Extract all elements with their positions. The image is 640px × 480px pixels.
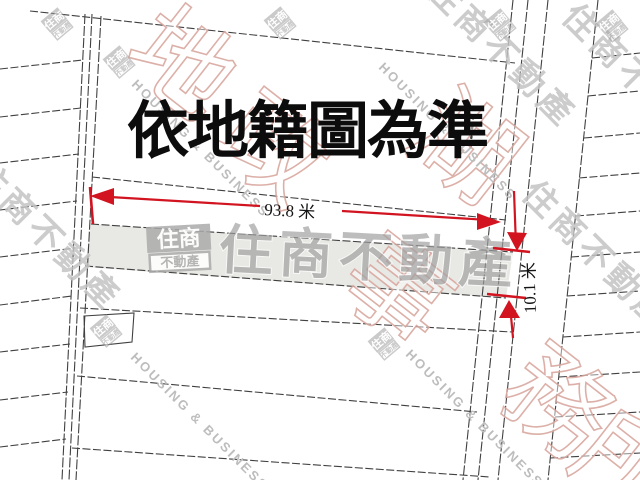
length-dimension-label: 93.8 米 — [264, 200, 316, 222]
brand-cjk-center-watermark: 住商不動產 — [217, 220, 520, 296]
dimension-extension-tick-left — [90, 187, 93, 224]
brand-logo: 住商 不動產 — [146, 224, 212, 272]
brand-en-watermark: HOUSING & BUSINESS — [128, 350, 272, 480]
width-dimension-label: 10.1 米 — [519, 262, 540, 314]
brand-watermark-center: 住商 不動產 住商不動產 — [146, 220, 520, 296]
brand-logo-bottom-text: 不動產 — [160, 253, 200, 270]
dimension-leader-lower — [511, 316, 513, 338]
cadastral-map-image: 住商 不動產 — [0, 0, 640, 480]
disclaimer-title: 依地籍圖為準 — [127, 97, 487, 166]
cadastral-map-svg: 住商 不動產 — [0, 0, 640, 480]
brand-logo-top-text: 住商 — [156, 225, 201, 252]
